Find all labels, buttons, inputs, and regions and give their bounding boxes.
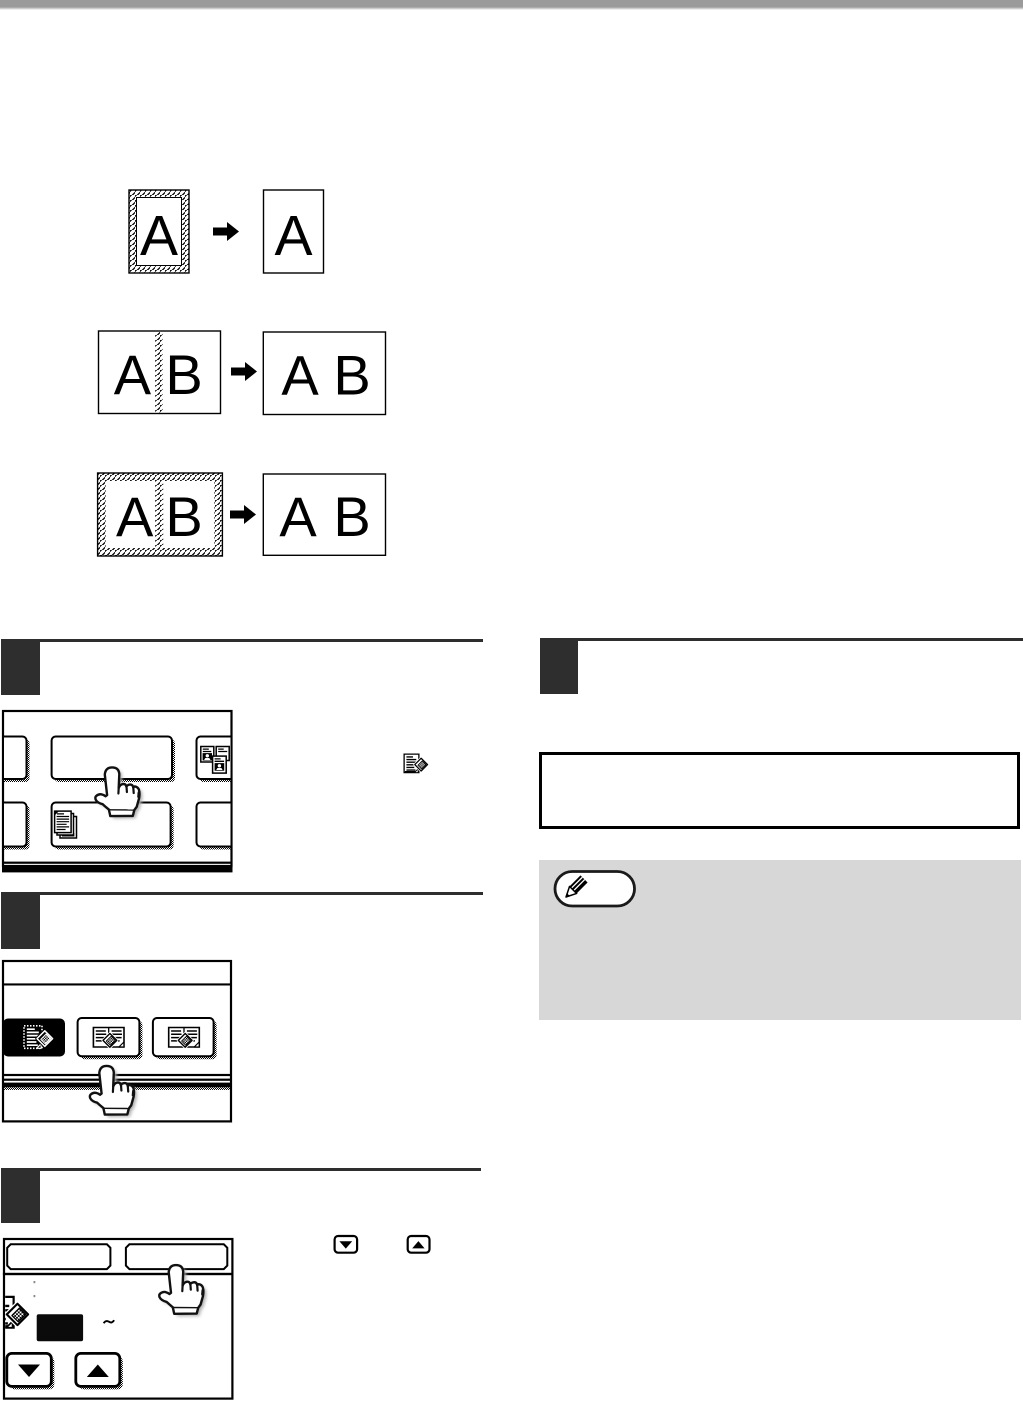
svg-text:B: B xyxy=(333,485,370,548)
svg-text:B: B xyxy=(165,485,202,548)
svg-text:A: A xyxy=(281,344,319,407)
svg-text:A: A xyxy=(114,343,152,406)
svg-text:B: B xyxy=(333,344,370,407)
svg-text:A: A xyxy=(274,204,312,268)
svg-text:A: A xyxy=(140,204,178,268)
svg-text:A: A xyxy=(279,485,317,548)
svg-text:A: A xyxy=(116,485,154,548)
svg-text:B: B xyxy=(165,343,202,406)
